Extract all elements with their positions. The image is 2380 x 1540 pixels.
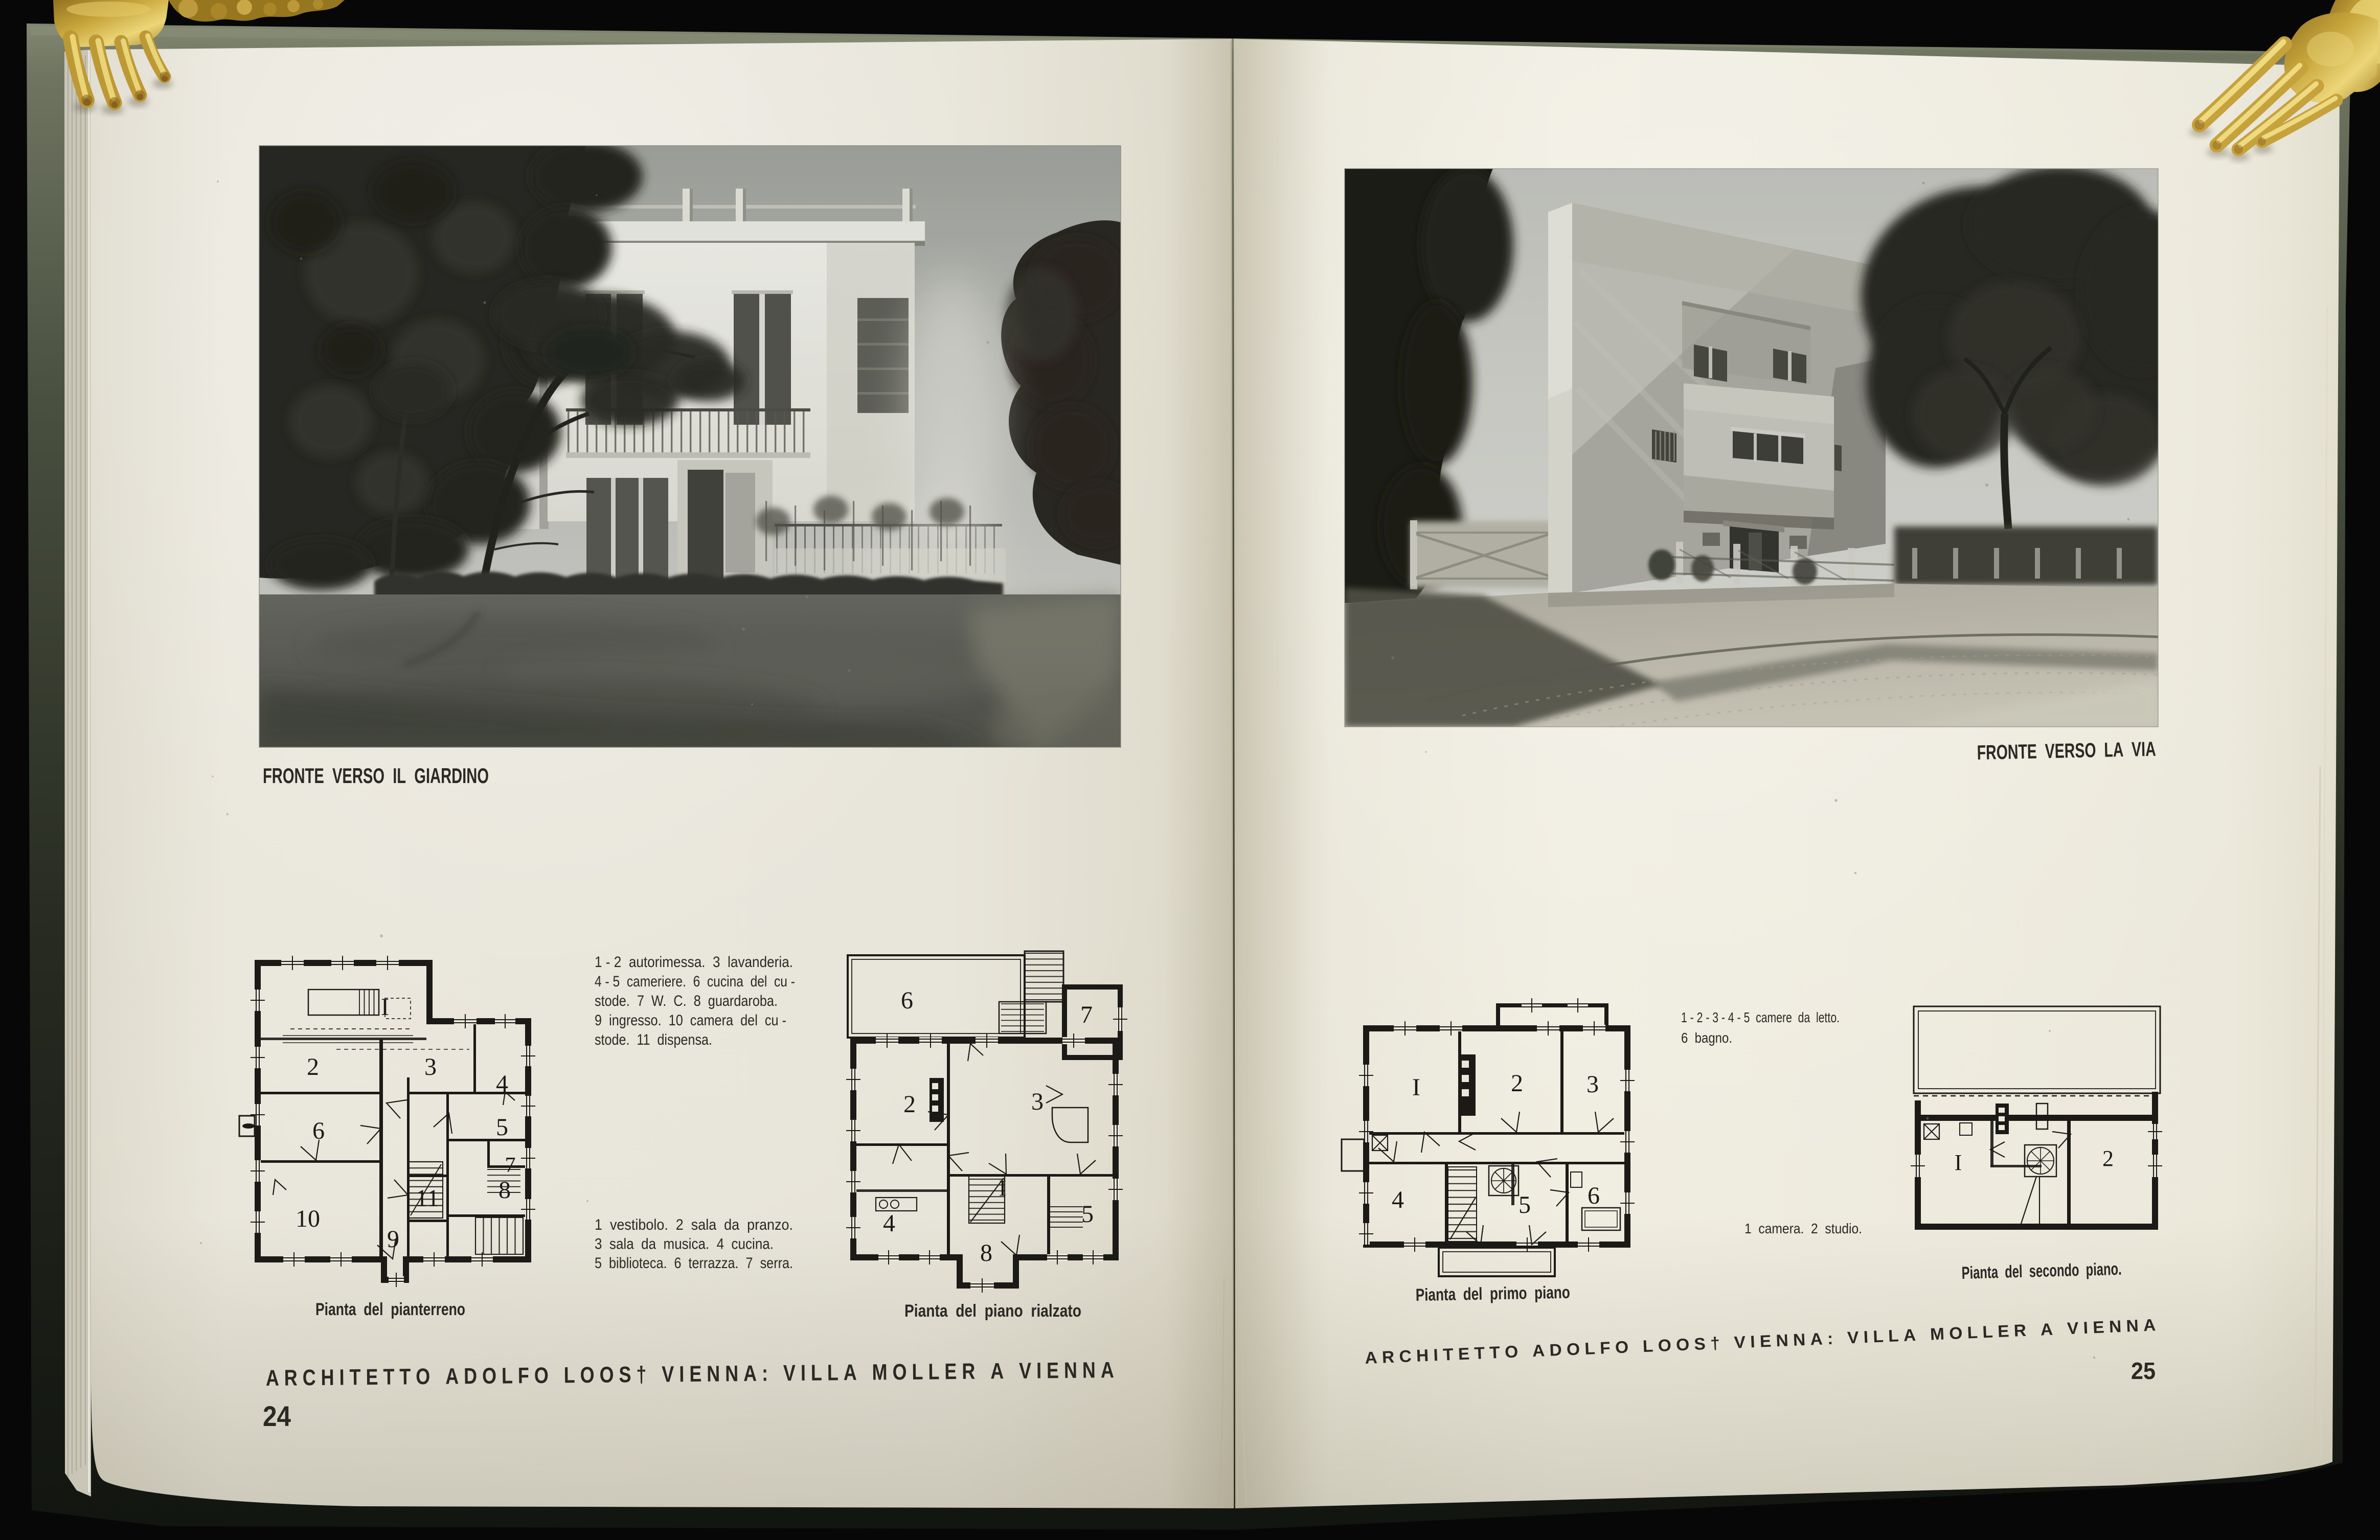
svg-text:I: I bbox=[381, 994, 389, 1021]
svg-text:10: 10 bbox=[296, 1205, 320, 1232]
svg-text:25: 25 bbox=[2131, 1358, 2156, 1384]
svg-text:Pianta del primo piano: Pianta del primo piano bbox=[1415, 1283, 1570, 1305]
svg-text:4: 4 bbox=[1392, 1186, 1404, 1213]
svg-text:1 vestibolo. 2 sala da pr: 1 vestibolo. 2 sala da pranzo. bbox=[595, 1216, 793, 1233]
svg-text:1 - 2 autorimessa. 3 lavand: 1 - 2 autorimessa. 3 lavanderia. bbox=[595, 954, 793, 971]
svg-text:8: 8 bbox=[980, 1239, 992, 1267]
svg-text:4: 4 bbox=[883, 1210, 895, 1237]
svg-text:Pianta del piano rialzato: Pianta del piano rialzato bbox=[904, 1301, 1081, 1321]
svg-text:5 biblioteca. 6 terrazza.: 5 biblioteca. 6 terrazza. 7 serra. bbox=[595, 1255, 793, 1272]
svg-text:I: I bbox=[1412, 1074, 1420, 1101]
svg-text:11: 11 bbox=[416, 1185, 439, 1212]
svg-text:5: 5 bbox=[1518, 1191, 1531, 1219]
svg-text:3: 3 bbox=[424, 1053, 437, 1081]
svg-text:I: I bbox=[999, 1176, 1007, 1201]
svg-text:4: 4 bbox=[496, 1070, 508, 1097]
svg-text:I: I bbox=[1955, 1150, 1962, 1175]
svg-text:2: 2 bbox=[1511, 1070, 1523, 1097]
svg-text:FRONTE VERSO LA VIA: FRONTE VERSO LA VIA bbox=[1977, 738, 2156, 764]
svg-text:Pianta del pianterreno: Pianta del pianterreno bbox=[315, 1300, 465, 1319]
svg-text:6: 6 bbox=[1588, 1182, 1600, 1209]
svg-text:6: 6 bbox=[312, 1117, 325, 1144]
svg-text:9 ingresso. 10 camera del: 9 ingresso. 10 camera del cu - bbox=[595, 1012, 786, 1029]
svg-text:5: 5 bbox=[496, 1114, 508, 1141]
svg-text:stode. 7 W. C. 8 guardaro: stode. 7 W. C. 8 guardaroba. bbox=[595, 993, 778, 1009]
svg-text:FRONTE VERSO IL GIARDINO: FRONTE VERSO IL GIARDINO bbox=[263, 764, 489, 788]
svg-text:2: 2 bbox=[903, 1091, 916, 1118]
svg-text:2: 2 bbox=[307, 1053, 319, 1081]
svg-text:3: 3 bbox=[1586, 1071, 1599, 1098]
svg-text:3: 3 bbox=[1031, 1088, 1044, 1115]
svg-text:9: 9 bbox=[387, 1226, 399, 1253]
svg-text:5: 5 bbox=[1081, 1201, 1094, 1228]
svg-text:1 camera. 2 studio.: 1 camera. 2 studio. bbox=[1744, 1221, 1862, 1236]
svg-text:6: 6 bbox=[901, 987, 913, 1014]
svg-text:7: 7 bbox=[1080, 1001, 1093, 1028]
svg-text:8: 8 bbox=[498, 1177, 511, 1204]
svg-text:6 bagno.: 6 bagno. bbox=[1681, 1030, 1732, 1046]
svg-text:4 - 5 cameriere. 6 cucina: 4 - 5 cameriere. 6 cucina del cu - bbox=[595, 973, 795, 990]
svg-text:stode. 11 dispensa.: stode. 11 dispensa. bbox=[595, 1031, 712, 1048]
svg-text:7: 7 bbox=[505, 1154, 516, 1177]
svg-text:3 sala da musica. 4 cucin: 3 sala da musica. 4 cucina. bbox=[595, 1236, 774, 1253]
svg-text:24: 24 bbox=[263, 1400, 291, 1432]
svg-text:2: 2 bbox=[2102, 1146, 2114, 1171]
svg-text:1 - 2 - 3 - 4 - 5 camere da: 1 - 2 - 3 - 4 - 5 camere da letto. bbox=[1681, 1009, 1840, 1025]
